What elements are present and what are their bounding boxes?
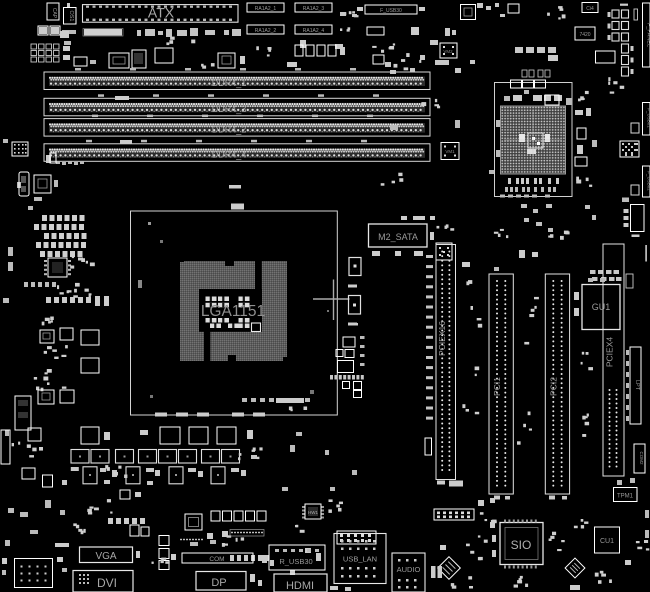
svg-text:VGA: VGA [95,551,116,562]
svg-text:R_USB30: R_USB30 [279,557,312,566]
svg-text:CAP: CAP [51,8,57,19]
svg-text:HDMI: HDMI [286,580,314,592]
svg-text:PCI1: PCI1 [492,377,502,396]
svg-text:USB_LAN: USB_LAN [343,555,377,564]
svg-text:F_USB30: F_USB30 [380,8,402,14]
svg-text:LGA1151: LGA1151 [201,303,265,320]
svg-text:Ci4: Ci4 [586,6,594,12]
svg-text:VM2: VM2 [443,49,453,54]
svg-text:F_USB01: F_USB01 [647,108,650,128]
svg-text:M2_SATA: M2_SATA [378,232,418,242]
svg-text:DDR4_4: DDR4_4 [212,150,247,160]
svg-text:DVI: DVI [97,576,117,590]
svg-text:VM1: VM1 [445,149,455,154]
svg-text:HW1: HW1 [308,510,318,515]
svg-text:RA1A2_1: RA1A2_1 [255,6,277,12]
svg-text:PCIEX16: PCIEX16 [437,321,447,356]
svg-text:CU1: CU1 [600,538,614,545]
svg-text:RA1A2_2: RA1A2_2 [255,28,277,34]
svg-text:AUDIO: AUDIO [397,565,421,574]
svg-text:F_USB02: F_USB02 [647,171,650,191]
svg-text:F_PANEL: F_PANEL [646,23,650,47]
svg-text:GU1: GU1 [592,302,611,312]
svg-text:DDR4_1: DDR4_1 [212,78,247,88]
svg-text:DP: DP [211,577,226,589]
svg-text:COM2: COM2 [639,451,644,464]
svg-text:ATX: ATX [148,5,175,21]
svg-text:RA1A2_3: RA1A2_3 [303,6,325,12]
svg-text:COM: COM [209,556,224,563]
svg-text:RA1A2_4: RA1A2_4 [303,28,325,34]
svg-text:OS1: OS1 [68,10,74,21]
svg-text:DDR4_2: DDR4_2 [212,124,247,134]
svg-text:PCI2: PCI2 [548,377,558,396]
svg-text:SIO: SIO [511,538,532,552]
svg-text:7420: 7420 [579,32,590,38]
svg-text:LPT: LPT [634,380,640,391]
svg-text:DDR4_3: DDR4_3 [212,104,247,114]
svg-text:TPM1: TPM1 [617,494,634,500]
svg-text:PCIEX4: PCIEX4 [605,337,615,368]
